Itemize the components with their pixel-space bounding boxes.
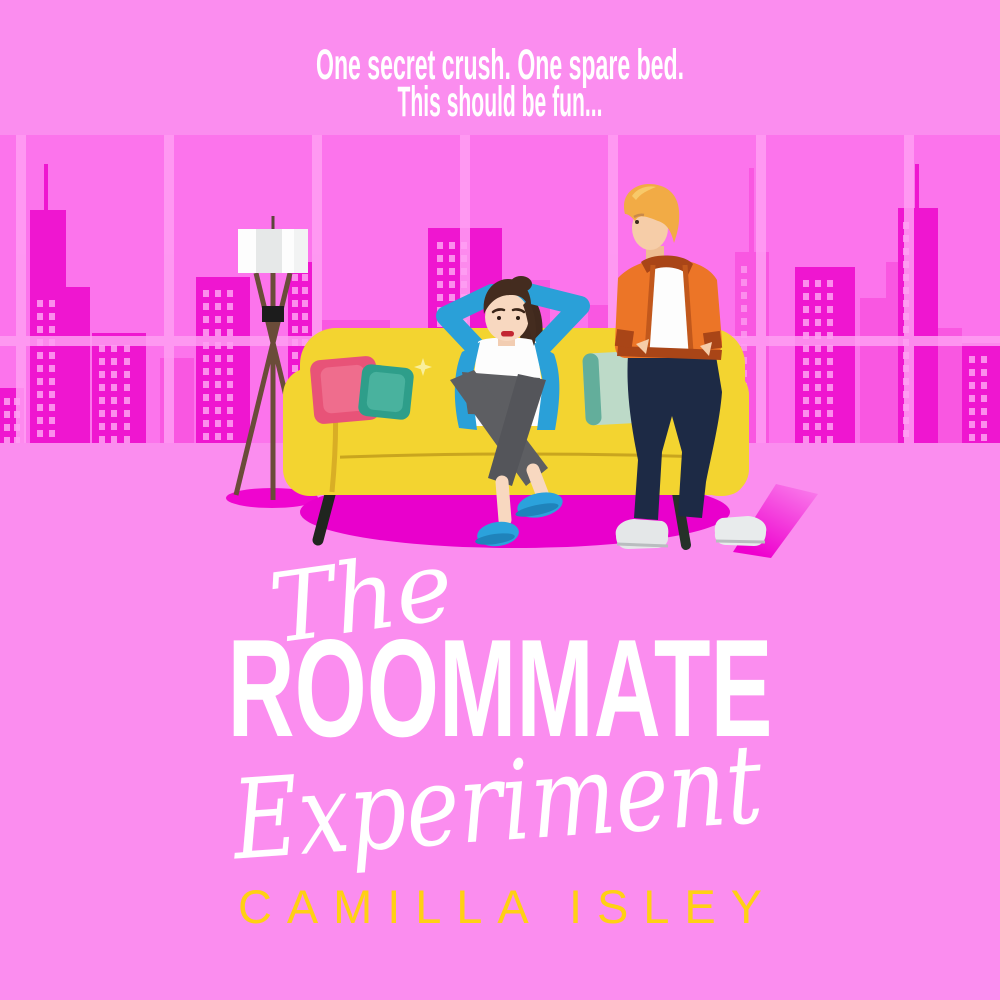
tagline-line2: This should be fun... xyxy=(398,78,603,126)
lamp-clamp xyxy=(262,306,284,322)
woman-hair-bun xyxy=(510,276,532,292)
book-cover: One secret crush. One spare bed. This sh… xyxy=(0,0,1000,1000)
lamp-shade xyxy=(238,229,308,273)
cover-illustration: One secret crush. One spare bed. This sh… xyxy=(0,0,1000,1000)
author-name: CAMILLA ISLEY xyxy=(238,880,762,933)
man-eye xyxy=(635,220,639,224)
pillow-teal xyxy=(357,363,414,420)
woman-eye-left xyxy=(497,316,501,320)
woman-eye-right xyxy=(516,316,520,320)
woman-lips xyxy=(501,331,514,337)
man-cuff-left xyxy=(615,329,634,348)
